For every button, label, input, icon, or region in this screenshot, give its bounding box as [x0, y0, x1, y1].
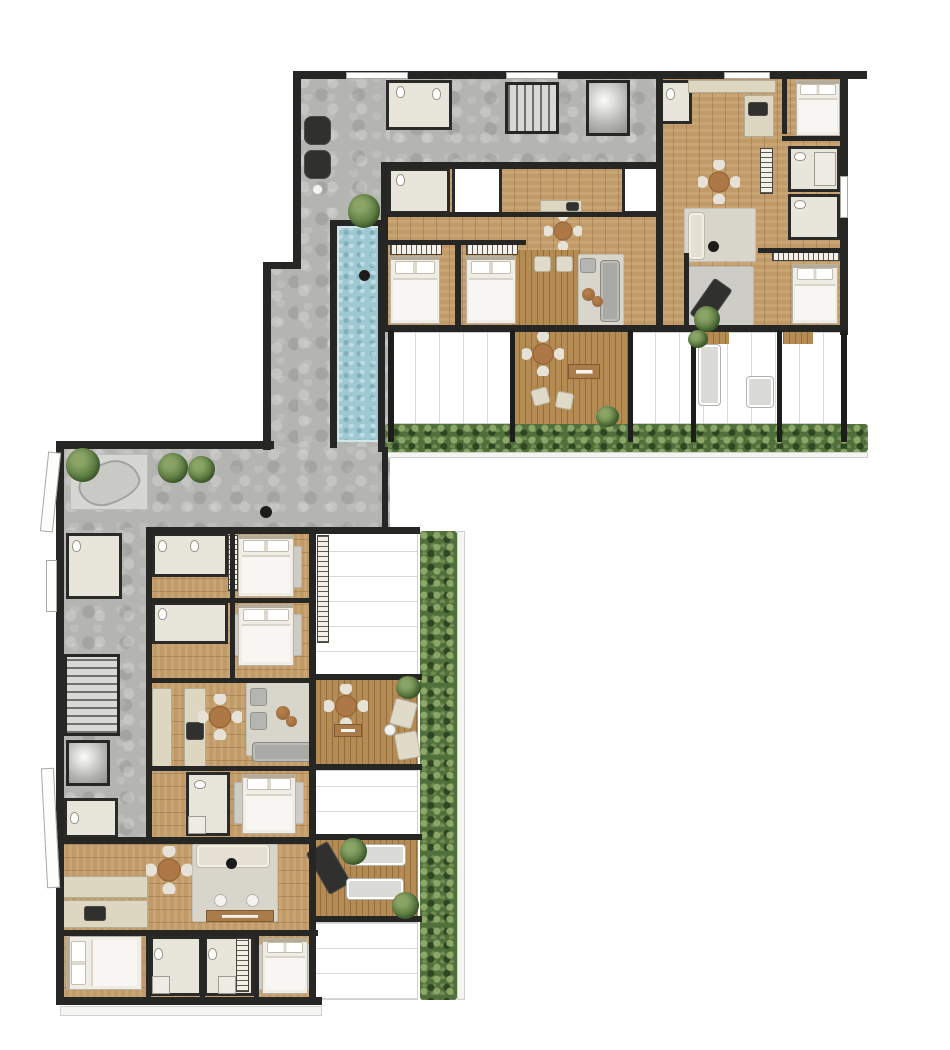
- toilet-13: [208, 948, 217, 960]
- deck-chair-2: [555, 391, 575, 411]
- toilet-6: [794, 200, 806, 209]
- dining-set-upper-left: [544, 212, 582, 250]
- wall-bath-bed-divider-a: [230, 531, 235, 679]
- dining-set-upper-right: [698, 160, 740, 204]
- toilet-4: [666, 88, 675, 100]
- bed-lower-bottom-left: [66, 936, 142, 990]
- wardrobe-upper-right-v: [760, 148, 773, 194]
- wall-bath-divider-1: [146, 934, 151, 1000]
- shower-lower-c: [188, 816, 206, 834]
- wall-connector-left: [263, 262, 271, 450]
- balcony-lower-2: [314, 770, 418, 838]
- wall-bed-divider-upper: [455, 242, 461, 328]
- hedge-upper: [385, 424, 868, 452]
- shower-bottom-2: [218, 976, 236, 994]
- bed-lower-bottom-right: [262, 938, 308, 994]
- wall-lower-y838: [56, 837, 316, 844]
- balcony-lower-1: [314, 531, 418, 678]
- wall-bottom-y932: [56, 930, 318, 936]
- toilet-8: [158, 540, 167, 552]
- wall-lower-plaza-bottom: [148, 527, 420, 534]
- tree-plaza-2: [158, 453, 188, 483]
- tub-upper-right: [814, 152, 836, 186]
- staircase-upper: [505, 82, 559, 134]
- laundry-void-upper-mid: [622, 166, 660, 214]
- wall-pool-right: [378, 220, 385, 452]
- pouf-lower-2: [286, 716, 297, 727]
- bench-deck-upper: [568, 364, 600, 379]
- lounger-balcony-2: [746, 376, 774, 408]
- hedge-planter-edge-upper: [385, 452, 868, 458]
- laundry-void-upper-left: [452, 166, 502, 216]
- toilet-12: [154, 948, 163, 960]
- wall-plaza-right: [382, 447, 388, 531]
- wall-lower-y600: [150, 598, 312, 603]
- mullion-2: [510, 330, 515, 442]
- window-top-3: [724, 72, 770, 79]
- wall-pool-left: [330, 220, 337, 448]
- dining-set-deck-upper: [522, 332, 564, 376]
- armchair-lower-1: [250, 688, 267, 706]
- bed-upper-right-bottom: [792, 264, 838, 324]
- lounger-stone-1: [304, 116, 331, 145]
- wardrobe-upper-left-1: [390, 244, 442, 255]
- wall-left-lower: [56, 441, 64, 1005]
- plant-deck-lower-3: [392, 892, 419, 919]
- bed-lower-c: [242, 774, 296, 834]
- wall-beds-top-upper: [384, 240, 526, 245]
- mullion-5: [777, 330, 782, 442]
- plant-den: [694, 306, 720, 332]
- wall-deck-divider-2: [312, 764, 422, 770]
- armchair-deck-1: [534, 256, 551, 272]
- bed-lower-b: [238, 604, 294, 666]
- staircase-lower: [64, 654, 120, 736]
- media-console-bottom: [206, 910, 274, 922]
- wall-deck-divider-3: [312, 834, 422, 840]
- hedge-planter-edge-lower: [457, 531, 465, 1000]
- wall-right-apt-v: [782, 74, 787, 134]
- stone-walkway-connector: [268, 262, 298, 447]
- lounger-deck-side-2: [394, 730, 421, 761]
- hedge-lower: [420, 531, 457, 1000]
- armchair-upper-left: [580, 258, 596, 273]
- toilet-9: [190, 540, 199, 552]
- bed-upper-left-2: [466, 256, 516, 324]
- wall-left-upper: [293, 71, 301, 269]
- toilet-5: [794, 152, 806, 161]
- kitchen-counter-lower-wall: [152, 688, 172, 772]
- toilet-2: [432, 88, 441, 100]
- cooktop-bottom: [84, 906, 106, 921]
- toilet-14: [70, 812, 79, 824]
- wall-den-divider: [684, 253, 689, 327]
- louver-balcony-lower-1: [317, 535, 329, 643]
- plant-deck-upper: [596, 406, 619, 427]
- shower-bottom-1: [152, 976, 170, 994]
- wall-top-lower: [58, 441, 274, 449]
- side-table-deck: [384, 724, 396, 736]
- plant-deck-lower-2: [340, 838, 367, 865]
- window-right-upper: [840, 176, 848, 218]
- kitchen-counter-bottom-1: [62, 876, 148, 898]
- side-table-stone: [312, 184, 323, 195]
- tree-plaza-1: [66, 448, 100, 482]
- window-top-1: [346, 72, 408, 79]
- tree-pool: [348, 194, 380, 228]
- plant-balcony-upper: [688, 330, 708, 348]
- mullion-3: [628, 330, 633, 442]
- wall-stone-apartment-divider: [384, 162, 662, 169]
- dining-set-bottom: [146, 846, 192, 894]
- sofa-lower: [252, 742, 314, 762]
- cooktop-upper-left: [566, 202, 579, 211]
- column-2: [708, 241, 719, 252]
- wall-lower-main-left: [146, 527, 152, 841]
- wall-apartment-divider-v: [656, 74, 663, 330]
- lounger-balcony-1: [698, 344, 721, 406]
- wall-bath-row-bottom-upper: [386, 212, 662, 217]
- toilet-3: [396, 174, 405, 186]
- toilet-7: [72, 540, 81, 552]
- mullion-1: [388, 330, 394, 442]
- cooktop-upper-right: [748, 102, 768, 116]
- wardrobe-upper-left-2: [466, 244, 518, 255]
- dining-set-lower: [198, 694, 242, 740]
- plant-deck-lower-1: [396, 676, 421, 699]
- tree-plaza-3: [188, 456, 215, 483]
- bed-upper-left-1: [390, 256, 440, 324]
- wall-connector-top: [263, 262, 301, 269]
- mullion-6: [841, 330, 847, 442]
- sofa-upper-left: [600, 260, 620, 322]
- sofa-upper-right: [688, 212, 705, 260]
- sill-bottom-lower: [60, 1006, 322, 1016]
- bed-lower-a: [238, 535, 294, 597]
- armchair-lower-2: [250, 712, 267, 730]
- column-3: [260, 506, 272, 518]
- stool-bottom-1: [214, 894, 227, 907]
- elevator-lower: [66, 740, 110, 786]
- wardrobe-lower-bottom: [236, 938, 249, 992]
- wall-right-apt-bed-top: [758, 248, 842, 253]
- wall-lower-y768: [150, 766, 312, 771]
- bed-upper-right-top: [796, 80, 840, 136]
- window-left-mid: [46, 560, 57, 612]
- wall-lower-y680: [150, 678, 312, 683]
- toilet-10: [158, 608, 167, 620]
- window-top-2: [506, 72, 558, 79]
- lounger-stone-2: [304, 150, 331, 179]
- wall-bottom-lower: [56, 997, 322, 1005]
- floor-plan: [0, 0, 950, 1050]
- deck-threshold-bay5: [783, 332, 813, 344]
- kitchen-counter-upper-right-top: [688, 80, 776, 93]
- pouf-upper-left-2: [592, 296, 603, 307]
- dining-set-deck-lower: [324, 684, 368, 728]
- wall-bath-divider-2: [200, 934, 205, 1000]
- wall-bath-divider-3: [254, 934, 259, 1000]
- elevator-upper: [586, 80, 630, 136]
- armchair-deck-2: [556, 256, 573, 272]
- wall-right-apt-h: [782, 136, 842, 141]
- stool-bottom-2: [246, 894, 259, 907]
- pool: [337, 226, 380, 442]
- bench-deck-lower: [334, 724, 362, 737]
- balcony-lower-3: [314, 922, 418, 1000]
- toilet-1: [396, 86, 405, 98]
- toilet-11: [194, 780, 206, 789]
- column-4: [226, 858, 237, 869]
- column-1: [359, 270, 370, 281]
